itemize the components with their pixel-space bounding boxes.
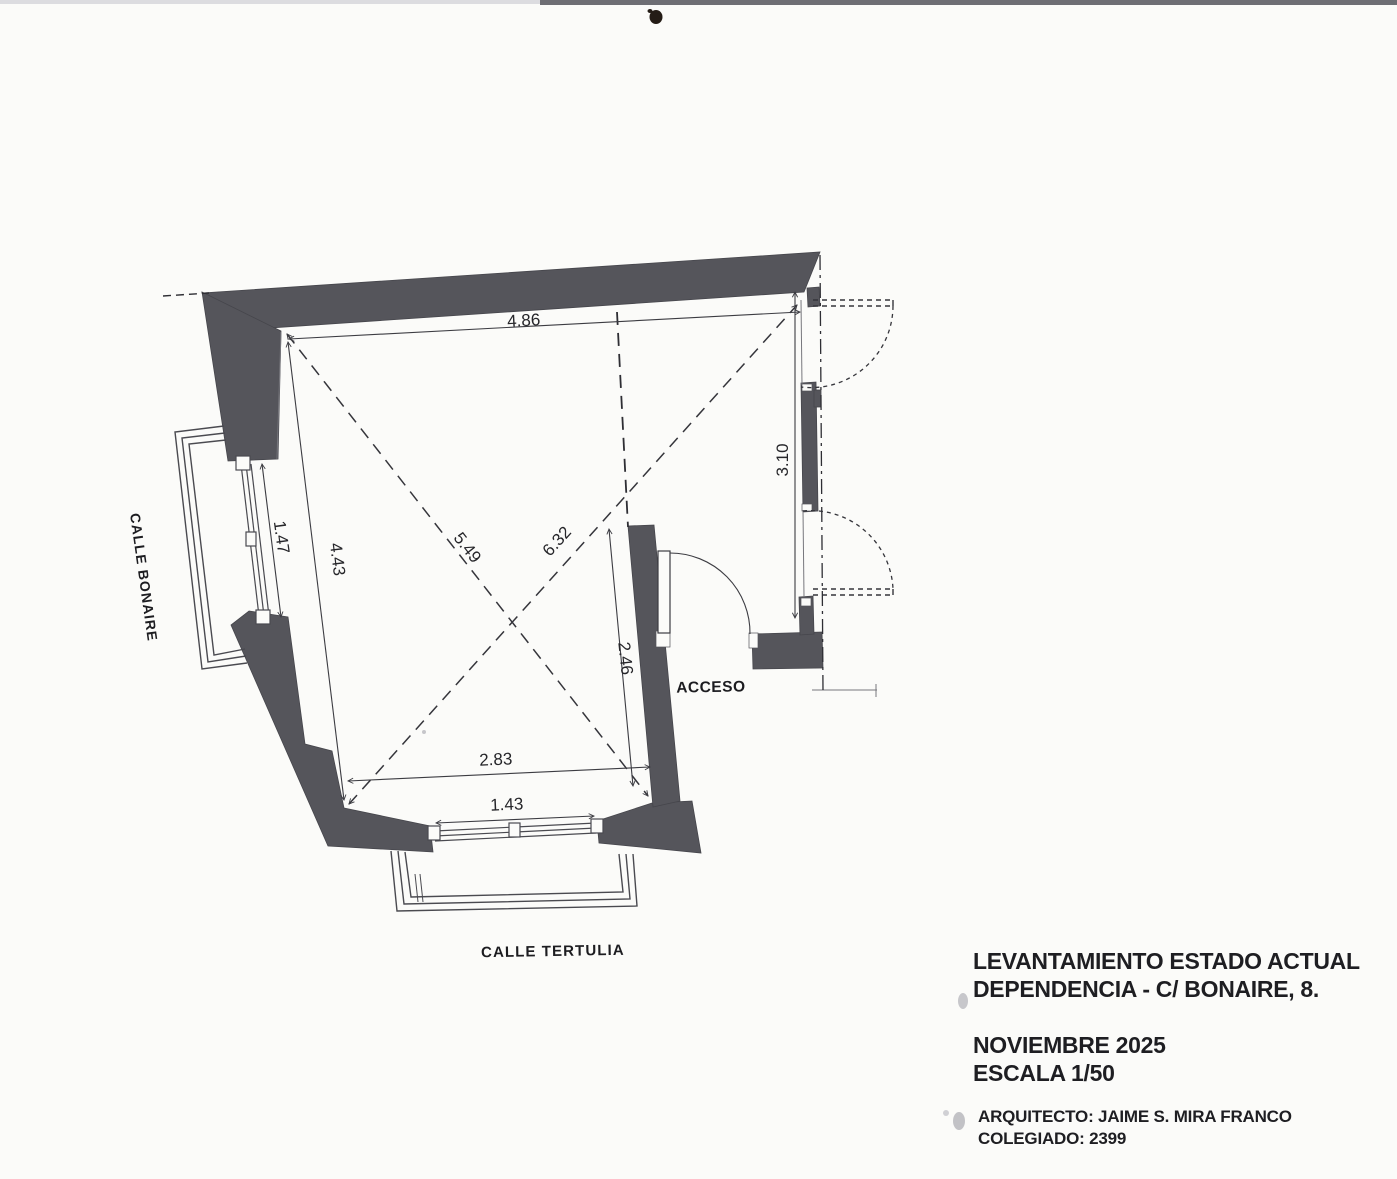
dim-label-partition: 2.46 — [614, 641, 636, 676]
dim-label-bottom: 2.83 — [479, 749, 513, 769]
window-jamb-block — [236, 456, 250, 470]
wall-bottom-right-pier — [597, 801, 701, 853]
jamb-notches — [656, 384, 812, 648]
title-line2: DEPENDENCIA - C/ BONAIRE, 8. — [973, 976, 1319, 1002]
door-swing-arc — [801, 306, 893, 388]
room-diagonals — [287, 305, 797, 804]
corridor-projection-dashed — [617, 312, 628, 527]
dim-label-left-wall: 4.43 — [326, 542, 349, 577]
smudge — [958, 993, 968, 1009]
jamb-notch — [749, 633, 758, 648]
scanned-floor-plan-sheet: 4.86 4.43 1.47 5.49 6.32 2.46 3.10 2.83 … — [0, 0, 1397, 1179]
balcony-bottom — [391, 851, 637, 911]
balcony-divider — [415, 874, 418, 902]
window-mullion — [509, 823, 520, 837]
door-swing-arc — [803, 511, 893, 589]
door-leaf — [658, 551, 670, 633]
window-mullion — [246, 532, 256, 546]
diagonal-6-32 — [349, 305, 797, 804]
street-label-bonaire: CALLE BONAIRE — [127, 512, 161, 642]
jamb-notch — [802, 504, 812, 511]
floor-plan-canvas: 4.86 4.43 1.47 5.49 6.32 2.46 3.10 2.83 … — [0, 0, 1397, 1179]
door-acceso — [658, 551, 750, 634]
face-line-right-lower — [803, 510, 804, 597]
jamb-notch — [801, 598, 811, 606]
window-left — [236, 456, 270, 624]
door-swing-arc — [670, 553, 750, 634]
face-line-right-upper — [801, 300, 802, 385]
title-block: LEVANTAMIENTO ESTADO ACTUAL DEPENDENCIA … — [973, 948, 1360, 1148]
railing-line — [405, 852, 623, 897]
title-line1: LEVANTAMIENTO ESTADO ACTUAL — [973, 948, 1360, 974]
wall-left-lower — [231, 611, 433, 852]
wall-top-right-jamb — [807, 287, 820, 307]
title-architect: ARQUITECTO: JAIME S. MIRA FRANCO — [978, 1107, 1292, 1126]
dim-label-right: 3.10 — [773, 443, 792, 476]
ink-speck-small — [648, 9, 653, 13]
dim-label-bottom-window: 1.43 — [490, 794, 524, 814]
dimension-labels: 4.86 4.43 1.47 5.49 6.32 2.46 3.10 2.83 … — [270, 310, 792, 815]
title-scale: ESCALA 1/50 — [973, 1060, 1115, 1086]
wall-right-pier-step — [814, 390, 821, 407]
smudge — [953, 1112, 965, 1130]
window-jamb-block — [591, 819, 603, 833]
walls — [202, 252, 823, 853]
dim-line-bottom-window — [436, 816, 594, 823]
title-date: NOVIEMBRE 2025 — [973, 1032, 1166, 1058]
door-right-lower — [803, 511, 893, 595]
dim-label-left-window: 1.47 — [270, 520, 293, 555]
door-right-upper — [801, 300, 893, 388]
scan-edge-line-dark — [540, 0, 1397, 5]
balcony-divider — [420, 874, 423, 902]
paper-dot — [422, 730, 426, 734]
wall-acceso-pier — [752, 632, 823, 669]
dim-label-diag-short: 5.49 — [450, 529, 485, 567]
dim-label-top: 4.86 — [507, 310, 541, 331]
axis-dash-dot-line — [820, 255, 823, 691]
street-label-tertulia: CALLE TERTULIA — [481, 942, 625, 962]
dim-label-diag-long: 6.32 — [539, 523, 575, 560]
access-label: ACCESO — [676, 678, 746, 696]
window-jamb-block — [428, 826, 440, 840]
smudge — [943, 1110, 949, 1116]
window-jamb-block — [256, 610, 270, 624]
title-license: COLEGIADO: 2399 — [978, 1129, 1126, 1148]
dim-line-bottom — [348, 767, 650, 781]
